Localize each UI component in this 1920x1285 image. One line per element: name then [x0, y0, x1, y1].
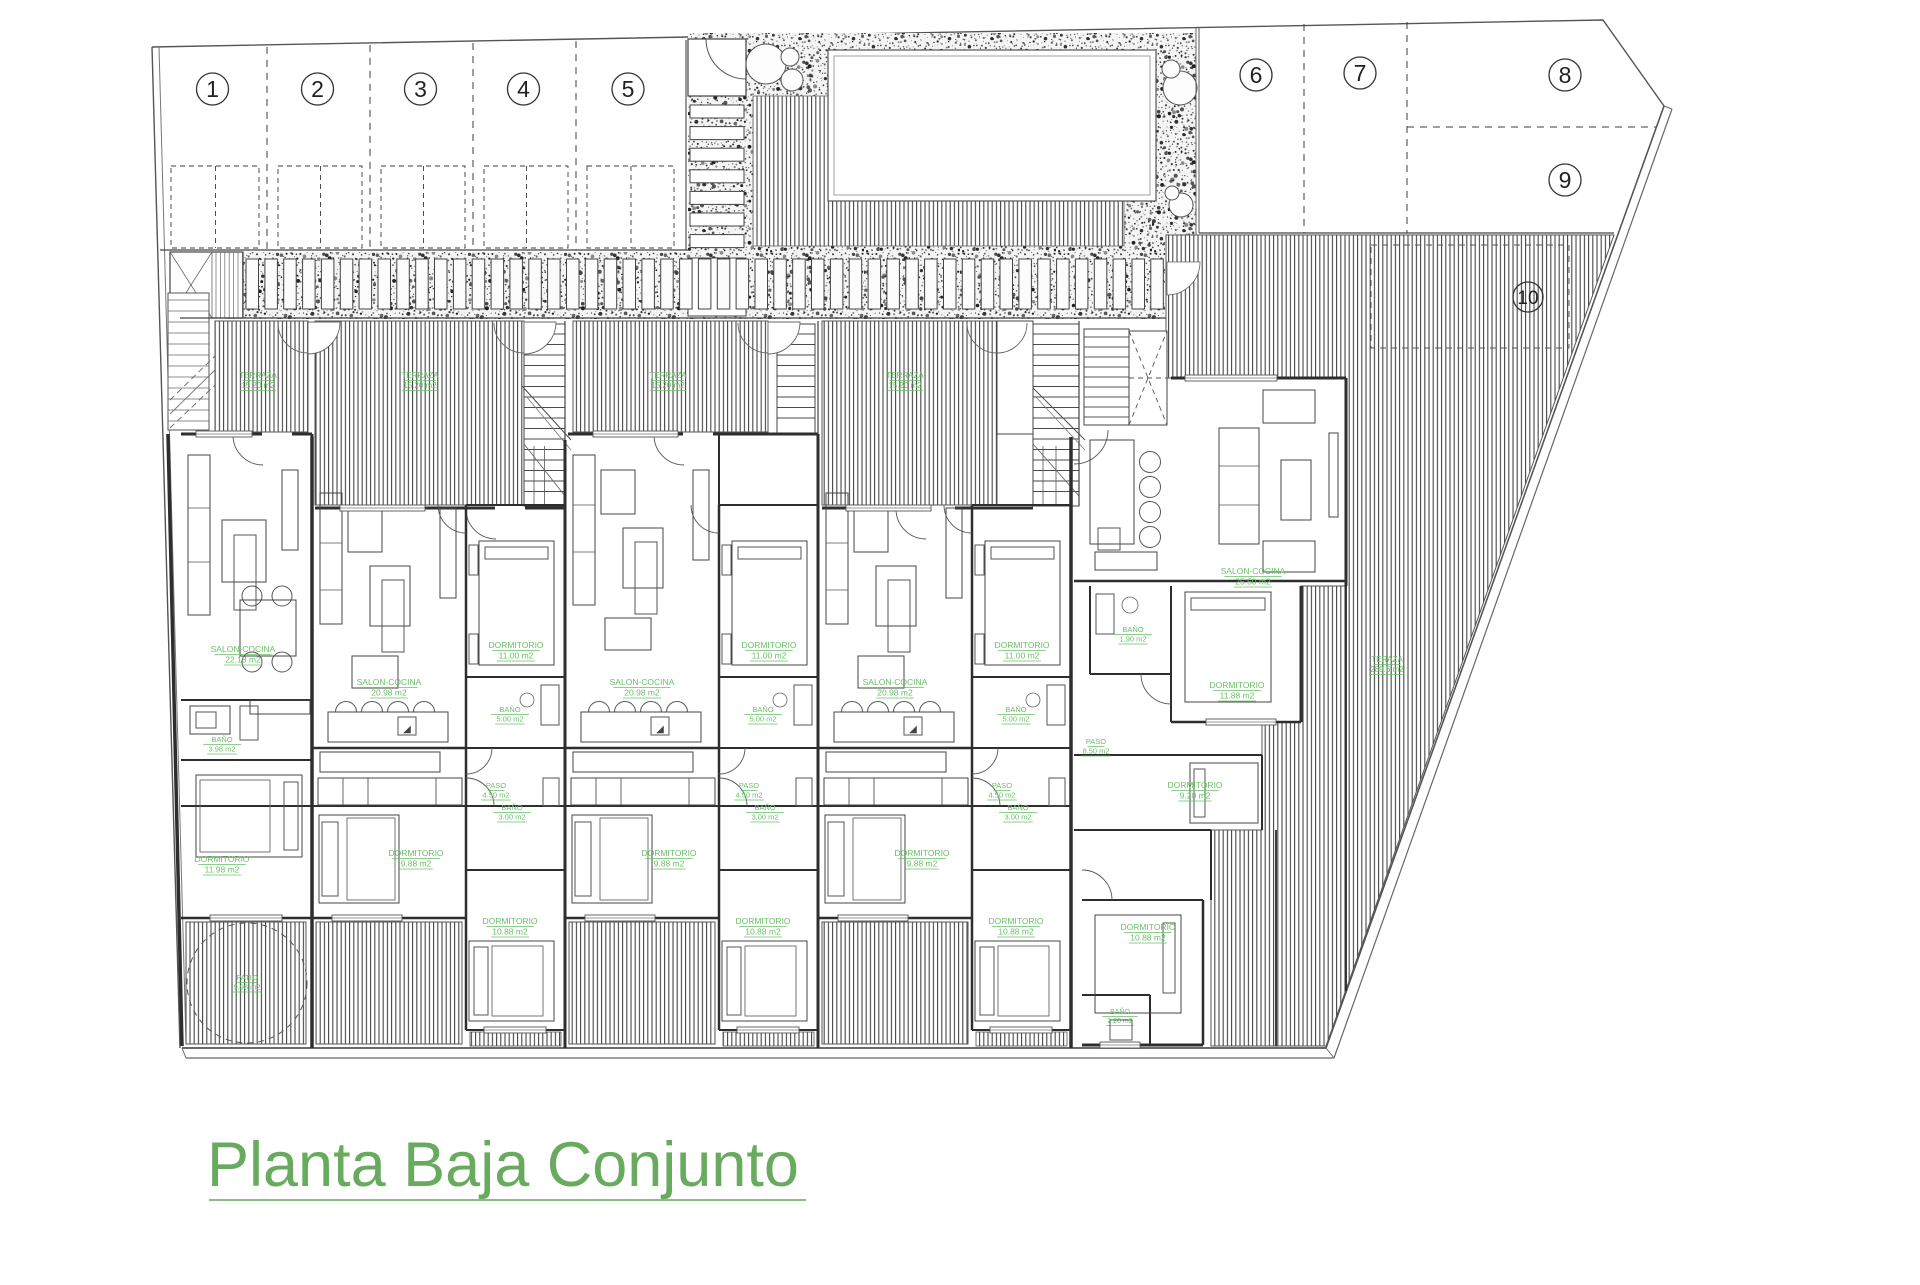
svg-text:SALON-COCINA: SALON-COCINA [1221, 566, 1286, 576]
svg-text:1.90 m2: 1.90 m2 [1119, 635, 1146, 644]
svg-text:5.00 m2: 5.00 m2 [1002, 715, 1029, 724]
svg-text:BAÑO: BAÑO [754, 803, 775, 812]
svg-text:9.88 m2: 9.88 m2 [401, 859, 432, 869]
svg-text:3.00 m2: 3.00 m2 [751, 813, 778, 822]
svg-text:15.20 m2: 15.20 m2 [888, 381, 922, 390]
svg-text:BAÑO: BAÑO [501, 803, 522, 812]
svg-text:BAÑO: BAÑO [1007, 803, 1028, 812]
svg-text:Planta Baja Conjunto: Planta Baja Conjunto [207, 1130, 799, 1200]
svg-text:3.98 m2: 3.98 m2 [208, 745, 235, 754]
svg-text:9.20 m2: 9.20 m2 [1180, 791, 1211, 801]
svg-text:BAÑO: BAÑO [499, 705, 520, 714]
svg-text:10.88 m2: 10.88 m2 [492, 927, 528, 937]
svg-text:PASO: PASO [1086, 737, 1106, 746]
svg-text:DORMITORIO: DORMITORIO [988, 916, 1043, 926]
svg-text:22.18 m2: 22.18 m2 [225, 655, 261, 665]
svg-text:9.88 m2: 9.88 m2 [654, 859, 685, 869]
svg-text:2: 2 [311, 76, 324, 102]
svg-text:9.98 m2: 9.98 m2 [233, 983, 260, 992]
svg-text:BAÑO: BAÑO [211, 735, 232, 744]
svg-text:10.88 m2: 10.88 m2 [998, 927, 1034, 937]
svg-text:DORMITORIO: DORMITORIO [1120, 922, 1175, 932]
svg-text:7: 7 [1354, 60, 1367, 86]
svg-text:1: 1 [206, 76, 219, 102]
svg-text:TERRAZA: TERRAZA [239, 371, 277, 380]
svg-text:◢: ◢ [403, 724, 411, 735]
svg-text:4.50 m2: 4.50 m2 [482, 791, 509, 800]
svg-text:DORMITORIO: DORMITORIO [894, 848, 949, 858]
svg-text:DORMITORIO: DORMITORIO [641, 848, 696, 858]
svg-text:TERRAZA: TERRAZA [649, 371, 687, 380]
svg-text:15.20 m2: 15.20 m2 [403, 381, 437, 390]
svg-text:20.98 m2: 20.98 m2 [371, 688, 407, 698]
svg-text:11.00 m2: 11.00 m2 [752, 651, 787, 661]
svg-text:4.50 m2: 4.50 m2 [735, 791, 762, 800]
svg-text:3: 3 [414, 76, 427, 102]
svg-text:11.98 m2: 11.98 m2 [205, 865, 240, 875]
svg-text:10.88 m2: 10.88 m2 [1130, 933, 1166, 943]
svg-text:4.50 m2: 4.50 m2 [988, 791, 1015, 800]
svg-text:SALON-COCINA: SALON-COCINA [610, 677, 675, 687]
svg-text:5: 5 [622, 76, 635, 102]
svg-text:TERRAZA: TERRAZA [886, 371, 924, 380]
svg-text:9.88 m2: 9.88 m2 [907, 859, 938, 869]
svg-text:25.50 m2: 25.50 m2 [1235, 577, 1271, 587]
svg-text:PATIO: PATIO [236, 973, 258, 982]
svg-text:DORMITORIO: DORMITORIO [194, 854, 249, 864]
svg-text:3.00 m2: 3.00 m2 [498, 813, 525, 822]
svg-text:BAÑO: BAÑO [752, 705, 773, 714]
svg-text:11.88 m2: 11.88 m2 [1220, 691, 1255, 701]
svg-text:TERRAZA: TERRAZA [401, 371, 439, 380]
svg-text:5.00 m2: 5.00 m2 [496, 715, 523, 724]
svg-text:BAÑO: BAÑO [1122, 625, 1143, 634]
svg-text:SALON-COCINA: SALON-COCINA [863, 677, 928, 687]
svg-text:5.00 m2: 5.00 m2 [749, 715, 776, 724]
svg-text:3.00 m2: 3.00 m2 [1004, 813, 1031, 822]
svg-text:20.98 m2: 20.98 m2 [624, 688, 660, 698]
svg-text:15.20 m2: 15.20 m2 [651, 381, 685, 390]
svg-text:289.6 m2: 289.6 m2 [1370, 665, 1404, 674]
svg-text:BAÑO: BAÑO [1005, 705, 1026, 714]
svg-text:◢: ◢ [909, 724, 917, 735]
svg-text:4: 4 [517, 76, 530, 102]
svg-text:8: 8 [1559, 62, 1572, 88]
svg-text:DORMITORIO: DORMITORIO [482, 916, 537, 926]
svg-text:DORMITORIO: DORMITORIO [388, 848, 443, 858]
svg-text:PASO: PASO [739, 781, 759, 790]
svg-text:SALON-COCINA: SALON-COCINA [357, 677, 422, 687]
svg-text:9: 9 [1559, 167, 1572, 193]
svg-text:SALON-COCINA: SALON-COCINA [211, 644, 276, 654]
svg-text:6: 6 [1250, 62, 1263, 88]
svg-text:11.00 m2: 11.00 m2 [499, 651, 534, 661]
svg-text:20.98 m2: 20.98 m2 [877, 688, 913, 698]
svg-text:BAÑO: BAÑO [1110, 1007, 1130, 1016]
svg-text:10: 10 [1517, 288, 1538, 309]
svg-text:PASO: PASO [992, 781, 1012, 790]
svg-text:TERAZA: TERAZA [1371, 655, 1403, 664]
svg-text:DORMITORIO: DORMITORIO [1167, 780, 1222, 790]
svg-text:DORMITORIO: DORMITORIO [488, 640, 543, 650]
svg-text:DORMITORIO: DORMITORIO [735, 916, 790, 926]
svg-text:8.50 m2: 8.50 m2 [1082, 747, 1109, 756]
svg-text:10.88 m2: 10.88 m2 [745, 927, 781, 937]
svg-text:DORMITORIO: DORMITORIO [994, 640, 1049, 650]
svg-text:2.20 m2: 2.20 m2 [1107, 1018, 1132, 1025]
svg-text:PASO: PASO [486, 781, 506, 790]
svg-text:DORMITORIO: DORMITORIO [741, 640, 796, 650]
svg-text:11.00 m2: 11.00 m2 [1005, 651, 1040, 661]
svg-text:◢: ◢ [656, 724, 664, 735]
svg-text:DORMITORIO: DORMITORIO [1209, 680, 1264, 690]
svg-text:15.20 m2: 15.20 m2 [241, 381, 275, 390]
